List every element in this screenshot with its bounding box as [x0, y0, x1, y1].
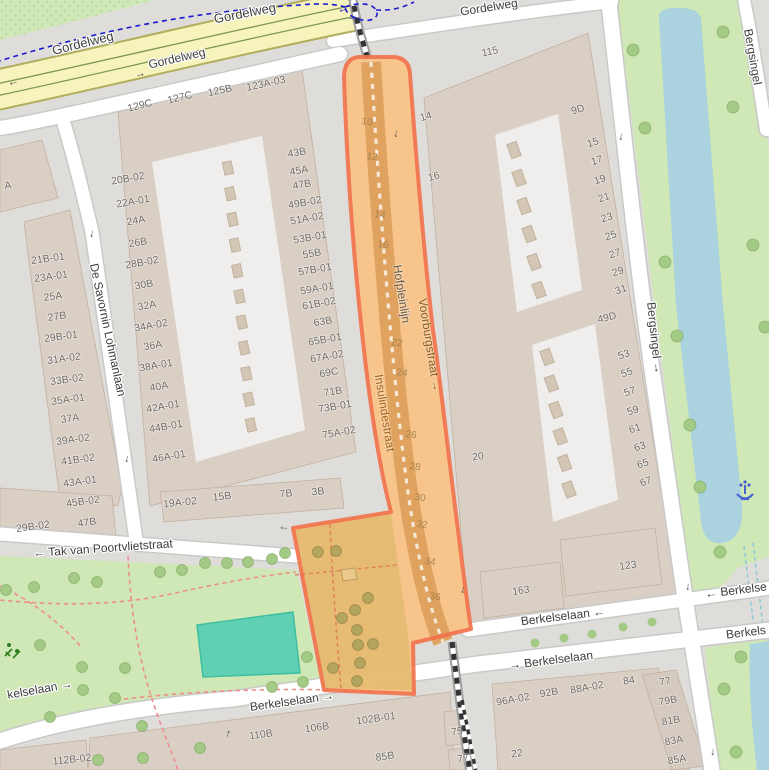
tree-icon	[717, 26, 729, 38]
rail-arch-number: 12	[366, 151, 379, 164]
tree-icon	[222, 558, 233, 569]
rail-arch-number: 10	[361, 116, 374, 129]
rail-arch-number: 14	[374, 209, 387, 222]
tree-icon	[588, 630, 597, 639]
rail-arch-number: 16	[377, 239, 390, 252]
selection-small-building	[341, 568, 357, 581]
tree-icon	[298, 677, 309, 688]
tree-icon	[78, 685, 89, 696]
tree-icon	[35, 640, 46, 651]
rail-arch-number: 30	[414, 492, 427, 505]
oneway-arrow: ←	[278, 521, 290, 534]
tree-icon	[619, 623, 628, 632]
tree-icon	[267, 682, 278, 693]
tree-icon	[639, 122, 651, 134]
house-number-label: 123	[618, 559, 637, 573]
tree-icon	[368, 639, 379, 650]
tree-icon	[718, 683, 730, 695]
tree-icon	[93, 755, 104, 766]
map-svg[interactable]: GordelwegGordelwegGordelwegGordelwegDe S…	[0, 0, 769, 770]
tree-icon	[267, 554, 278, 565]
tree-icon	[727, 101, 739, 113]
tree-icon	[363, 593, 374, 604]
house-number-label: 163	[511, 584, 530, 598]
tree-icon	[627, 44, 639, 56]
rail-arch-number: 28	[409, 461, 422, 474]
tree-icon	[302, 652, 313, 663]
tree-icon	[69, 573, 80, 584]
tree-icon	[531, 639, 540, 648]
rail-arch-number: 26	[405, 429, 418, 442]
tree-icon	[313, 547, 324, 558]
house-number-label: 7B	[279, 487, 293, 500]
tree-icon	[77, 662, 88, 673]
tree-icon	[331, 546, 342, 557]
tree-icon	[714, 546, 726, 558]
tree-icon	[659, 256, 671, 268]
tree-icon	[759, 321, 769, 333]
tree-icon	[110, 693, 121, 704]
rail-arch-number: 32	[416, 519, 429, 532]
tree-icon	[735, 651, 747, 663]
tree-icon	[747, 239, 759, 251]
tree-icon	[355, 658, 366, 669]
tree-icon	[353, 640, 364, 651]
tree-icon	[195, 743, 206, 754]
house-number-label: 20	[471, 450, 484, 464]
oneway-arrow: ↓	[685, 581, 691, 593]
tree-icon	[560, 634, 569, 643]
house-number-label: 15B	[212, 490, 232, 504]
house-number-label: 77	[658, 675, 672, 689]
house-number-label: 84	[622, 674, 636, 688]
tree-icon	[155, 567, 166, 578]
tree-icon	[45, 712, 56, 723]
tree-icon	[328, 663, 339, 674]
rail-arch-number: 24	[396, 367, 409, 380]
map-canvas[interactable]: GordelwegGordelwegGordelwegGordelwegDe S…	[0, 0, 769, 770]
oneway-arrow: ↓	[710, 746, 716, 758]
house-number-label: 75	[450, 725, 463, 739]
rail-arch-number: 22	[391, 337, 404, 350]
tree-icon	[29, 582, 40, 593]
tree-icon	[137, 721, 148, 732]
rail-arch-number: 34	[424, 556, 437, 569]
house-number-label: 22	[510, 747, 523, 761]
tree-icon	[1, 585, 12, 596]
tree-icon	[92, 577, 103, 588]
tree-icon	[177, 565, 188, 576]
tree-icon	[352, 676, 363, 687]
rail-arch-number: 36	[429, 591, 442, 604]
oneway-arrow: ↓	[618, 131, 625, 143]
tree-icon	[671, 330, 683, 342]
tree-icon	[350, 605, 361, 616]
tree-icon	[138, 753, 149, 764]
tree-icon	[684, 419, 696, 431]
tree-icon	[243, 557, 254, 568]
tree-icon	[337, 613, 348, 624]
tree-icon	[352, 625, 363, 636]
tree-icon	[730, 746, 742, 758]
house-number-label: 3B	[311, 485, 325, 498]
oneway-arrow: →	[346, 8, 360, 24]
tree-icon	[280, 548, 291, 559]
tree-icon	[694, 481, 706, 493]
tree-icon	[648, 618, 657, 627]
house-number-label: 77	[456, 752, 469, 766]
tree-icon	[120, 663, 131, 674]
tree-icon	[200, 558, 211, 569]
building-123	[560, 528, 662, 596]
